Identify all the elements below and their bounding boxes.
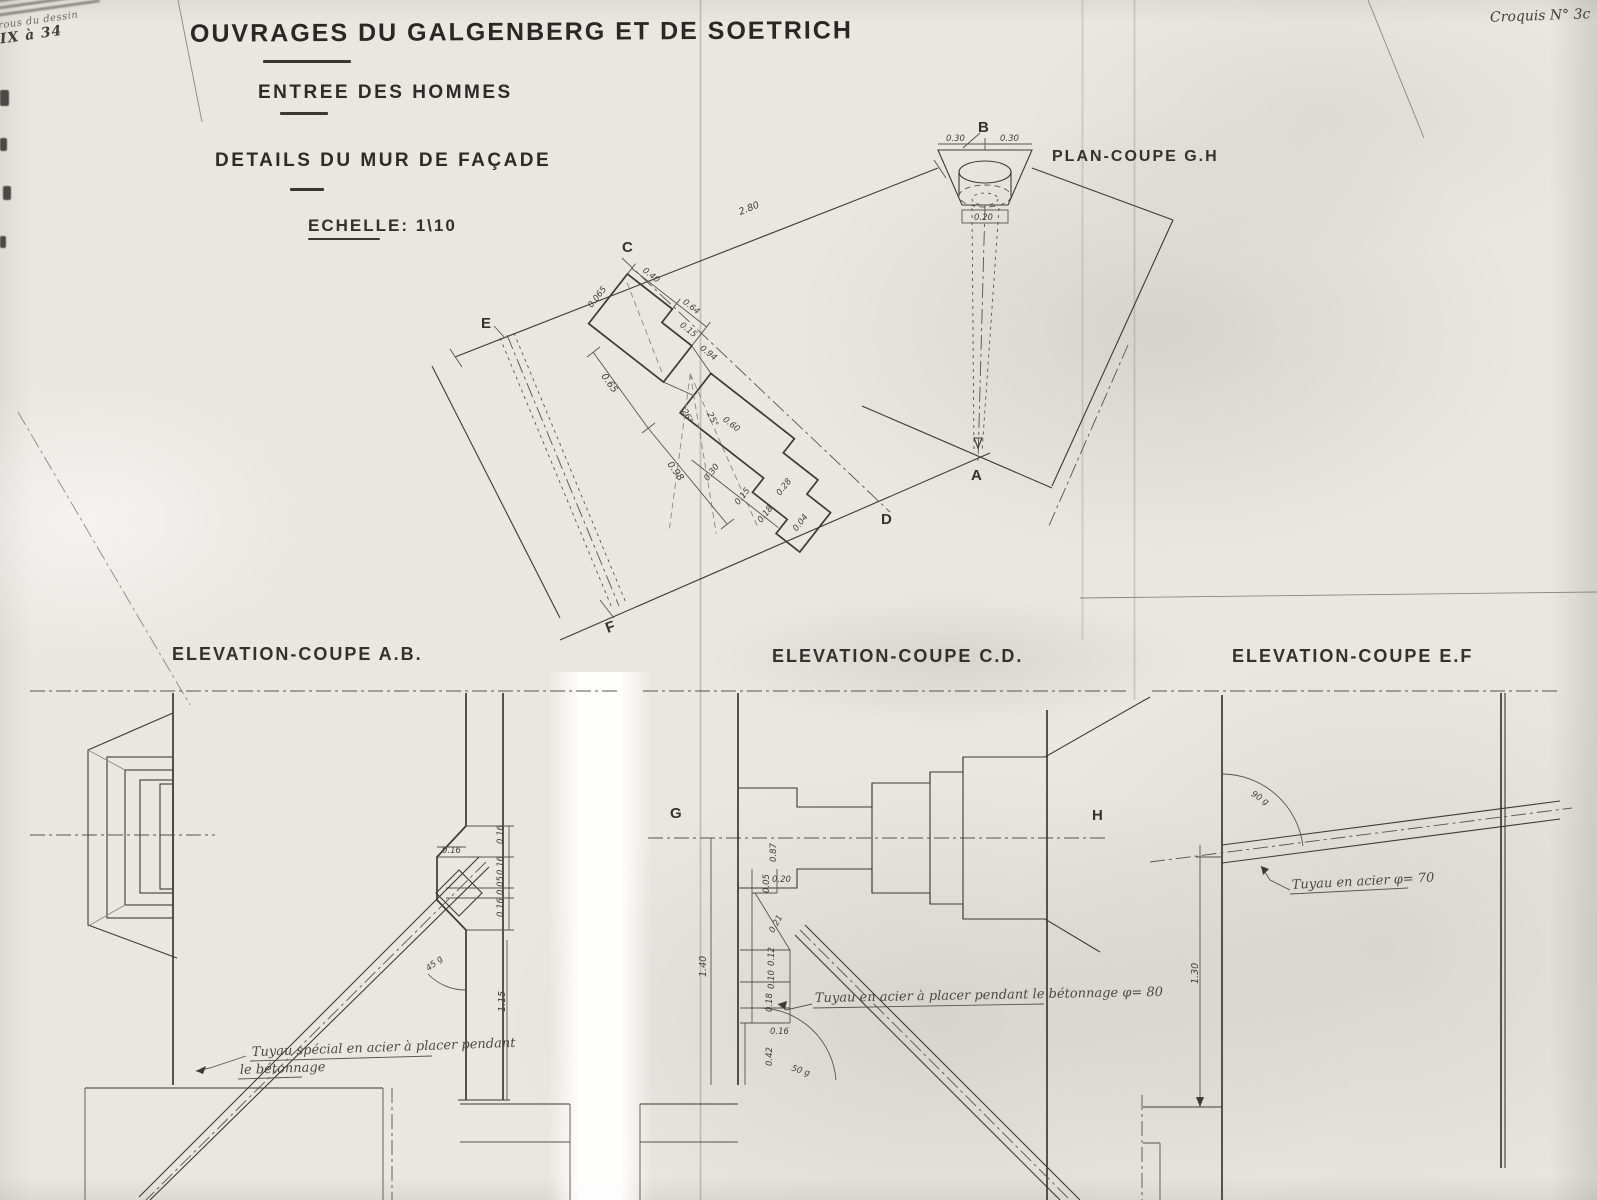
cd-annotation: Tuyau en acier à placer pendant le béton… (778, 985, 1163, 1010)
dim-cd-d5: 0.12 (767, 947, 777, 966)
ab-footing (85, 1088, 392, 1200)
dim-cd-d8: 0.16 (770, 1027, 790, 1037)
dim-ab-notch-top: 0.16 (442, 846, 462, 856)
plan-view: B C E A D F 2.80 0.30 0.30 0.20 0.40 0.6… (18, 119, 1173, 705)
cd-note: Tuyau en acier à placer pendant le béton… (815, 985, 1163, 1006)
dim-ef-height: 1.30 (1190, 963, 1201, 984)
cd-cut-line (622, 258, 890, 512)
dim-step-c: 0.04 (791, 512, 811, 533)
ef-pipe (1150, 774, 1572, 863)
dim-side-b: 0.98 (664, 460, 685, 484)
dim-side-a: 0.65 (598, 372, 619, 396)
dim-ab-angle: 45 g (424, 953, 445, 973)
ab-note-line2: le bétonnage (240, 1060, 326, 1078)
dim-ab-r1: 0.16 (496, 824, 506, 844)
drawing-sheet: rous du dessin IX à 34 Croquis N° 3c OUV… (0, 0, 1597, 1200)
dim-step-b: 0.28 (775, 476, 795, 498)
cd-pipe (795, 925, 1080, 1200)
cd-letter-g: G (670, 805, 682, 822)
dim-vent-width: 0.20 (974, 213, 993, 223)
dim-cd-d9: 0.42 (765, 1047, 775, 1066)
dim-ab-r4: 0.16 (496, 897, 506, 917)
dim-throat: 0.94 (697, 344, 718, 364)
dim-ef-angle: 90 g (1249, 789, 1271, 808)
dim-step-a: 0.60 (720, 415, 741, 435)
dim-ab-r2: 0.16 (496, 855, 506, 875)
dim-ab-height: 1.15 (497, 991, 508, 1012)
dim-plan-span: 2.80 (737, 200, 761, 218)
dim-cd-angle: 50 g (790, 1064, 812, 1080)
ab-note-line1: Tuyau spécial en acier à placer pendant (252, 1036, 517, 1060)
dim-edge-b: 0.15 (733, 486, 753, 507)
plan-letter-a: A (971, 467, 982, 484)
drawing-linework: B C E A D F 2.80 0.30 0.30 0.20 0.40 0.6… (0, 0, 1597, 1200)
ef-note: Tuyau en acier φ= 70 (1291, 871, 1434, 893)
cd-letter-h: H (1092, 807, 1103, 824)
ab-pipe (139, 857, 489, 1200)
datum-lines (30, 0, 1597, 691)
plan-letter-e: E (481, 315, 491, 332)
dim-ab-r3: 0.05 (496, 876, 506, 895)
plan-letter-b: B (978, 119, 989, 136)
plan-boundary (18, 160, 1173, 705)
plan-letter-c: C (622, 239, 633, 256)
ef-annotation: Tuyau en acier φ= 70 (1261, 866, 1435, 894)
dim-cd-d6: 0.10 (767, 970, 777, 989)
dim-head-b: 0.64 (680, 297, 701, 317)
dim-vent-right: 0.30 (1000, 134, 1019, 144)
elevation-ef: 90 g 1.30 Tuyau en acier φ= 70 (1142, 693, 1572, 1200)
elevation-ab: 0.16 0.16 0.16 0.05 0.16 1.15 45 g Tuyau… (30, 693, 516, 1200)
dim-cd-d7: 0.18 (765, 992, 775, 1012)
stepped-wall-plan (520, 264, 878, 601)
dim-head-d: 0.065 (586, 285, 609, 310)
vent-drop-lines (972, 205, 999, 462)
dim-vent-left: 0.30 (946, 134, 965, 144)
dim-angle-b: 25° (704, 411, 720, 429)
elevation-cd: G H (460, 693, 1163, 1200)
plan-letter-f: F (603, 618, 617, 637)
dim-cd-d1: 0.87 (769, 842, 779, 862)
plan-letter-d: D (881, 511, 892, 528)
cd-profile (738, 693, 1150, 1200)
ab-annotation: Tuyau spécial en acier à placer pendant … (196, 1036, 516, 1079)
dim-edge-c: 0.18 (756, 504, 776, 526)
cd-footing (460, 1104, 738, 1200)
dim-cd-d2: 0.20 (772, 875, 791, 885)
ab-embrasure-front (30, 693, 215, 1085)
dim-cd-height: 1.40 (698, 956, 709, 977)
dim-head-a: 0.40 (640, 266, 661, 286)
dim-cd-d4: 0.21 (767, 913, 785, 934)
dim-cd-d3: 0.05 (762, 874, 772, 893)
ef-walls (1142, 693, 1505, 1200)
